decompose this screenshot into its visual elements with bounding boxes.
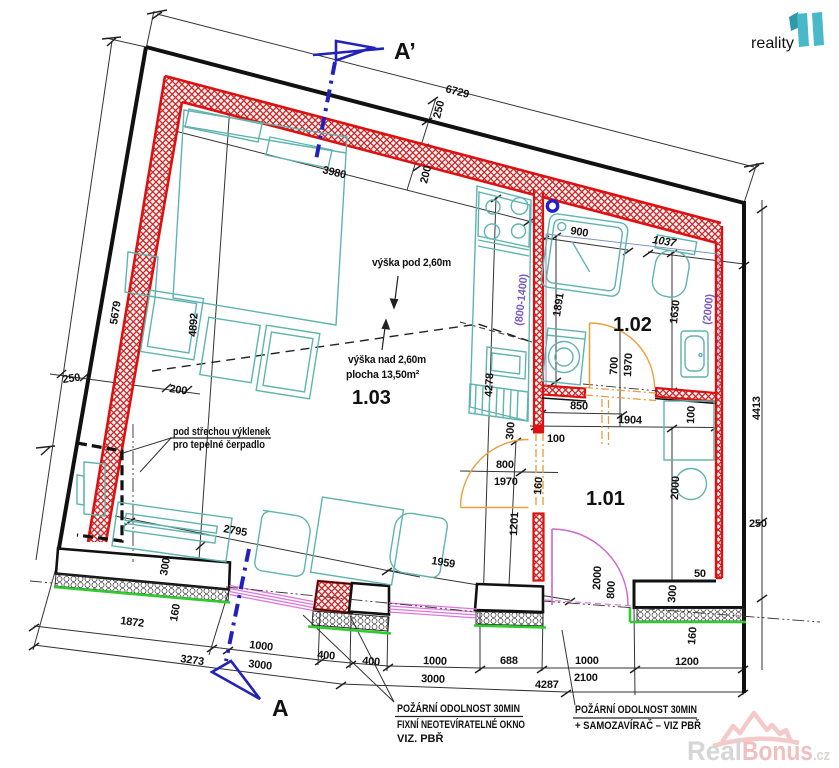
svg-text:1970: 1970 xyxy=(622,353,635,377)
svg-text:400: 400 xyxy=(317,649,336,663)
svg-text:plocha 13,50m²: plocha 13,50m² xyxy=(346,369,420,381)
svg-text:1201: 1201 xyxy=(508,512,521,536)
svg-text:4892: 4892 xyxy=(187,313,201,338)
svg-text:1904: 1904 xyxy=(618,414,643,427)
svg-text:300: 300 xyxy=(504,421,518,440)
svg-text:800: 800 xyxy=(496,459,514,471)
svg-text:reality: reality xyxy=(751,35,794,52)
svg-text:4287: 4287 xyxy=(535,679,559,691)
svg-text:RealBonus.cz: RealBonus.cz xyxy=(687,736,830,766)
svg-text:100: 100 xyxy=(547,433,565,445)
svg-text:2100: 2100 xyxy=(574,672,598,684)
svg-text:2000: 2000 xyxy=(591,566,604,590)
svg-text:4413: 4413 xyxy=(751,396,763,420)
svg-text:250: 250 xyxy=(62,372,81,386)
svg-text:400: 400 xyxy=(362,655,381,669)
svg-text:800: 800 xyxy=(605,581,618,599)
svg-text:+ SAMOZAVÍRAČ – VIZ PBŘ: + SAMOZAVÍRAČ – VIZ PBŘ xyxy=(575,719,701,732)
svg-text:1.02: 1.02 xyxy=(613,314,652,336)
svg-text:3000: 3000 xyxy=(421,673,445,686)
svg-text:700: 700 xyxy=(608,357,621,375)
svg-text:160: 160 xyxy=(686,626,700,645)
svg-text:pro tepelné čerpadlo: pro tepelné čerpadlo xyxy=(173,439,265,451)
svg-text:1000: 1000 xyxy=(423,655,447,668)
svg-text:A’: A’ xyxy=(394,38,416,64)
svg-text:1200: 1200 xyxy=(675,656,699,668)
svg-text:POŽÁRNÍ ODOLNOST 30MIN: POŽÁRNÍ ODOLNOST 30MIN xyxy=(397,702,520,715)
svg-text:A: A xyxy=(272,695,289,721)
svg-text:50: 50 xyxy=(694,568,706,580)
svg-text:výška nad 2,60m: výška nad 2,60m xyxy=(348,354,426,366)
svg-text:POŽÁRNÍ ODOLNOST 30MIN: POŽÁRNÍ ODOLNOST 30MIN xyxy=(575,703,697,716)
svg-text:4278: 4278 xyxy=(483,373,496,397)
svg-text:1630: 1630 xyxy=(668,299,682,324)
svg-text:100: 100 xyxy=(685,406,698,424)
svg-text:250: 250 xyxy=(749,518,767,530)
svg-text:1000: 1000 xyxy=(575,655,599,667)
svg-text:200: 200 xyxy=(169,383,188,397)
svg-text:výška pod 2,60m: výška pod 2,60m xyxy=(372,257,451,269)
svg-text:pod střechou výklenek: pod střechou výklenek xyxy=(173,426,271,438)
svg-text:VIZ. PBŘ: VIZ. PBŘ xyxy=(397,732,444,745)
svg-text:1970: 1970 xyxy=(494,476,518,488)
svg-text:FIXNÍ NEOTEVÍRATELNÉ OKNO: FIXNÍ NEOTEVÍRATELNÉ OKNO xyxy=(397,718,525,731)
svg-text:160: 160 xyxy=(532,476,546,495)
svg-text:2000: 2000 xyxy=(669,476,682,500)
svg-text:1.01: 1.01 xyxy=(586,488,625,510)
svg-text:1.03: 1.03 xyxy=(352,387,391,409)
svg-text:850: 850 xyxy=(570,400,588,413)
svg-text:688: 688 xyxy=(500,655,518,667)
svg-text:300: 300 xyxy=(666,584,680,603)
